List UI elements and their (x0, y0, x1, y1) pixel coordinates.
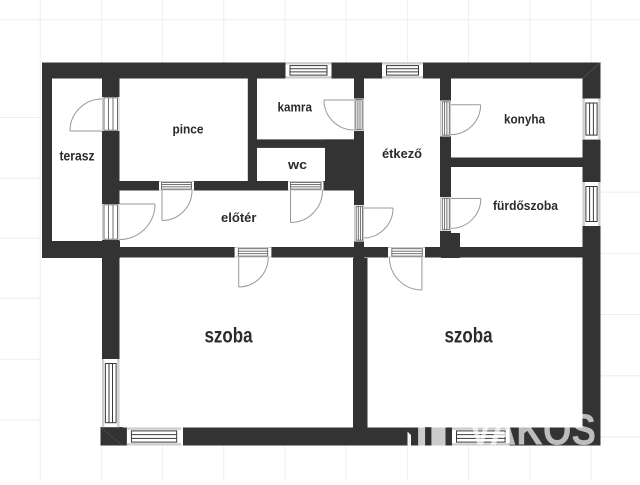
svg-text:étkező: étkező (382, 146, 422, 161)
svg-text:terasz: terasz (60, 149, 95, 164)
svg-text:előtér: előtér (221, 210, 257, 225)
svg-text:fürdőszoba: fürdőszoba (493, 198, 559, 213)
svg-text:kamra: kamra (278, 100, 313, 115)
svg-text:szoba: szoba (205, 325, 253, 348)
svg-text:konyha: konyha (504, 112, 546, 127)
svg-text:VAKOS: VAKOS (468, 406, 596, 455)
svg-text:szoba: szoba (445, 325, 493, 348)
svg-text:wc: wc (287, 157, 307, 172)
svg-text:pince: pince (173, 122, 204, 137)
